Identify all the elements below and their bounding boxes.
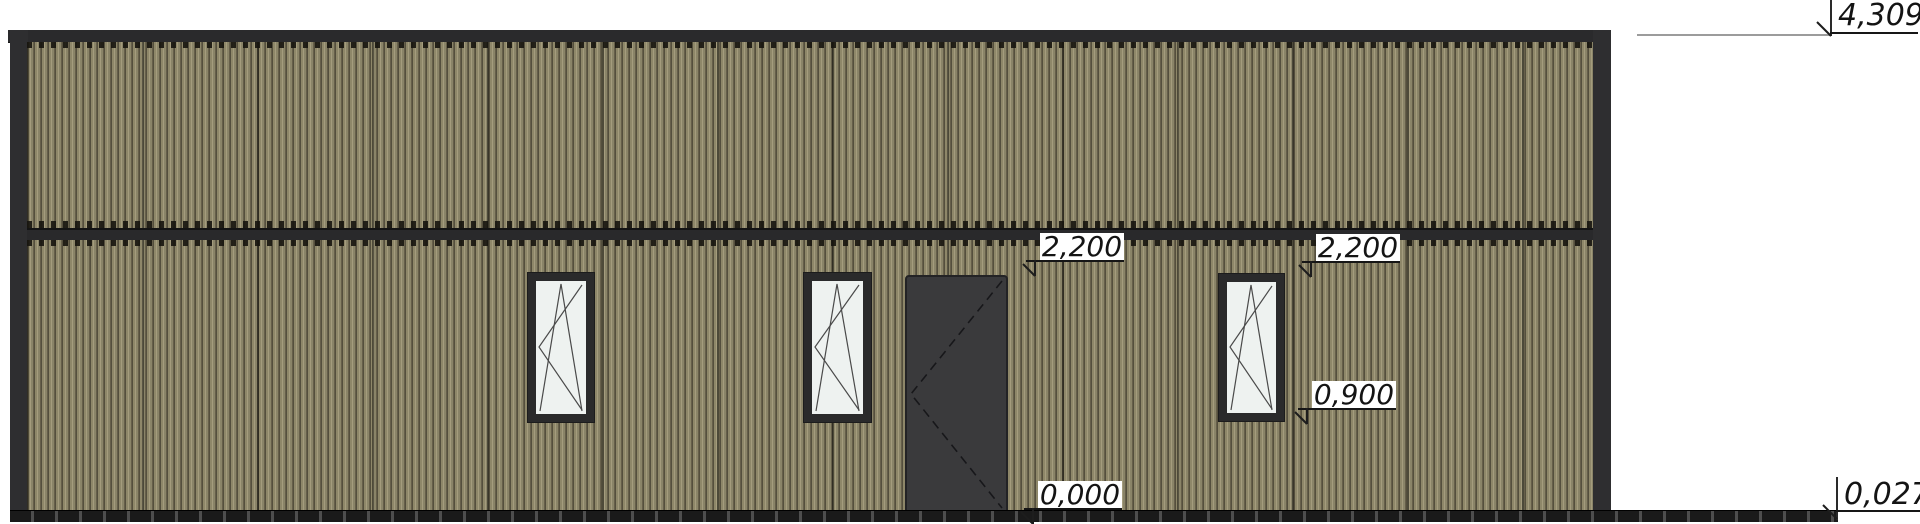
sill-level-value: 0,900	[1312, 381, 1396, 409]
door-swing-icon	[907, 277, 1006, 512]
corner-trim-right	[1593, 30, 1611, 514]
tilt-turn-symbol-icon	[1227, 282, 1276, 413]
level-tick-icon	[1021, 259, 1039, 277]
level-tick-icon	[1293, 407, 1311, 425]
label-underline	[1298, 408, 1396, 410]
cladding-upper	[27, 42, 1593, 228]
label-underline	[1026, 260, 1124, 262]
roof-level-value: 4,309	[1838, 1, 1920, 31]
dimension-leader-line	[1637, 34, 1831, 36]
tilt-turn-symbol-icon	[812, 281, 863, 414]
opening-top-left-value: 2,200	[1040, 233, 1124, 261]
level-tick-icon	[1019, 507, 1037, 524]
window-2	[804, 273, 871, 422]
window-3	[1219, 274, 1284, 421]
label-underline	[1024, 508, 1122, 510]
elevation-drawing: 4,309 0,027 2,200 2,200 0,900 0,000	[0, 0, 1920, 524]
slat-caps-top	[27, 42, 1593, 48]
level-tick-icon	[1297, 260, 1315, 278]
window-1	[528, 273, 594, 422]
opening-top-right-value: 2,200	[1316, 234, 1400, 262]
entrance-door	[905, 275, 1008, 514]
plinth-level-value: 0,027	[1844, 480, 1920, 510]
label-underline	[1302, 261, 1400, 263]
tilt-turn-symbol-icon	[536, 281, 586, 414]
slat-caps-bottom	[27, 221, 1593, 228]
corner-trim-left	[10, 30, 28, 514]
ground-line	[10, 510, 1838, 522]
floor-level-value: 0,000	[1038, 481, 1122, 509]
level-tick-icon	[1813, 18, 1833, 38]
